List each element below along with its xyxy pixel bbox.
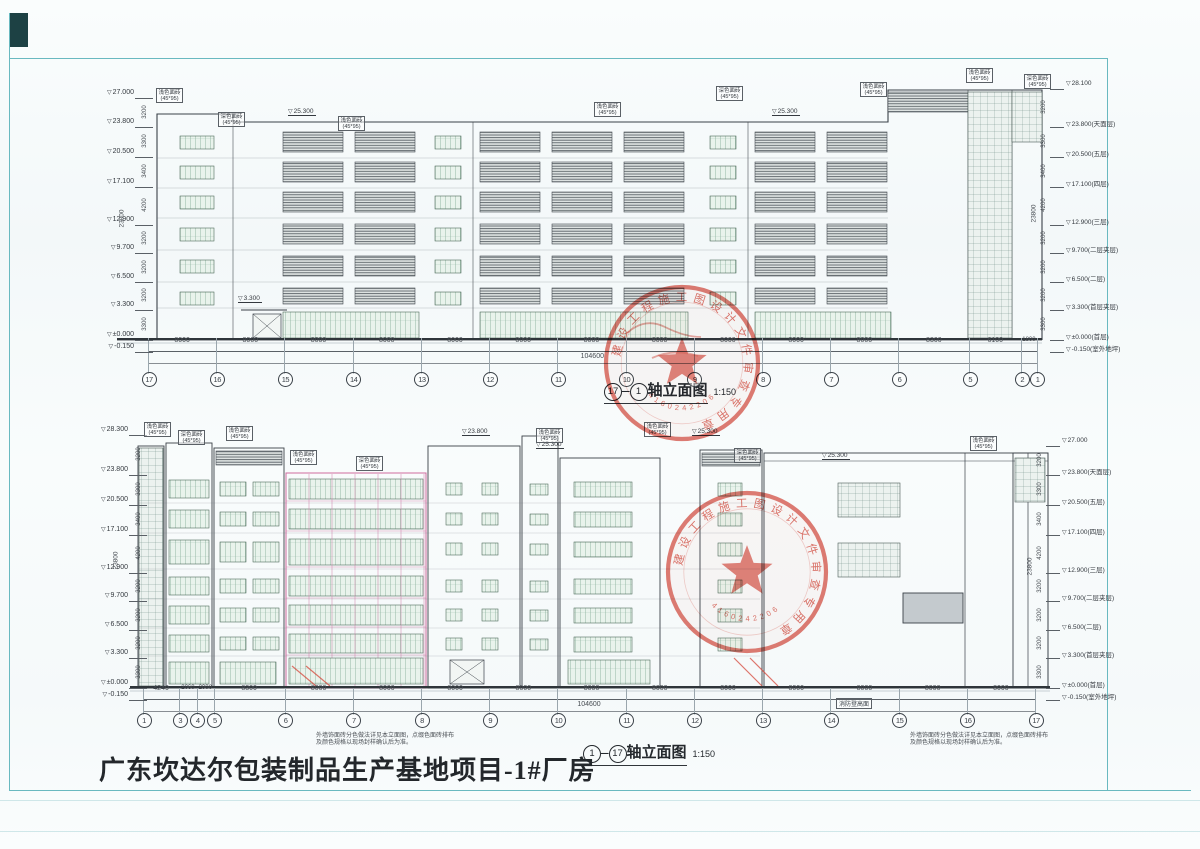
axis-tick [1035, 688, 1036, 715]
material-label: 深色面砖(45*95) [178, 430, 205, 445]
axis-bubble-17: 17 [1029, 713, 1044, 728]
axis-dimension: 8000 [762, 685, 830, 692]
axis-dimension: 8000 [967, 685, 1035, 692]
axis-dimension: 8000 [489, 685, 557, 692]
level-label: ▽9.700(二层夹层) [1066, 244, 1118, 254]
floor-height-dimension: 3300 [1037, 472, 1043, 506]
axis-bubble-1: 1 [1030, 372, 1045, 387]
axis-bubble-13: 13 [756, 713, 771, 728]
dimension-line [143, 711, 1035, 712]
note-line: 及颜色规格以现场封样确认后为准。 [910, 740, 1048, 747]
project-title: 广东坎达尔包装制品生产基地项目-1#厂房 [99, 750, 596, 787]
total-height-dimension: 23800 [1027, 550, 1034, 584]
floor-height-dimension: 3300 [142, 124, 148, 158]
axis-bubble-16: 16 [210, 372, 225, 387]
floor-height-dimension: 3300 [1037, 655, 1043, 689]
level-label: ▽27.000 [107, 89, 134, 96]
floor-height-dimension: 4200 [142, 188, 148, 222]
sheet-edge-line-2 [0, 831, 1200, 832]
scan-corner-artifact [10, 13, 28, 47]
axis-bubble-17: 17 [142, 372, 157, 387]
level-label: ▽3.300(首层夹层) [1066, 301, 1118, 311]
level-tick [1046, 505, 1060, 506]
axis-dimension: 8300 [898, 337, 969, 344]
axis-dimension: 8000 [285, 685, 353, 692]
material-label: 深色面砖(45*95) [716, 86, 743, 101]
level-label: ▽±0.000(首层) [1062, 679, 1105, 689]
floor-height-dimension: 3400 [142, 154, 148, 188]
level-label: ▽6.500 [111, 273, 134, 280]
level-label: ▽23.800(天面层) [1062, 466, 1111, 476]
axis-dimension: 8000 [148, 337, 216, 344]
level-label: ▽6.500(二层) [1062, 621, 1101, 631]
axis-bubble-12: 12 [483, 372, 498, 387]
level-tick [1046, 688, 1060, 689]
floor-height-dimension: 3400 [1037, 502, 1043, 536]
axis-dimension: 8300 [214, 685, 285, 692]
axis-dimension: 6100 [969, 337, 1021, 344]
axis-dimension: 2060 [179, 685, 197, 691]
level-tick [1046, 535, 1060, 536]
axis-bubble-14: 14 [346, 372, 361, 387]
total-height-dimension: 23800 [119, 202, 126, 236]
material-label: 深色面砖(45*95) [356, 456, 383, 471]
material-label: 深色面砖(45*95) [1024, 74, 1051, 89]
level-label: ▽17.100(四层) [1066, 178, 1109, 188]
title-text: 轴立面图 [627, 745, 687, 761]
axis-dimension: 8000 [762, 337, 830, 344]
axis-bubble-4: 4 [190, 713, 205, 728]
material-label: 浅色面砖(45*95) [594, 102, 621, 117]
level-label: ▽17.100 [107, 178, 134, 185]
level-label: ▽6.500(二层) [1066, 273, 1105, 283]
axis-bubble-13: 13 [414, 372, 429, 387]
level-label: ▽23.800 [101, 466, 128, 473]
level-label: ▽-0.150 [103, 691, 128, 698]
axis-dimension: 8000 [830, 685, 898, 692]
axis-bubble-6: 6 [278, 713, 293, 728]
axis-dimension: 8000 [626, 685, 694, 692]
axis-dimension: 8000 [489, 337, 557, 344]
axis-dimension: 8000 [353, 685, 421, 692]
level-label: ▽6.500 [105, 621, 128, 628]
material-label: 浅色面砖(45*95) [144, 422, 171, 437]
total-height-dimension: 23800 [113, 544, 120, 578]
level-label: ▽9.700 [105, 592, 128, 599]
elevation-mark: ▽23.800 [462, 428, 490, 436]
elevation-mark: ▽25.300 [772, 108, 800, 116]
axis-bubble-7: 7 [824, 372, 839, 387]
material-label: 浅色面砖(45*95) [226, 426, 253, 441]
floor-height-dimension: 3400 [136, 502, 142, 536]
level-label: ▽23.800 [107, 118, 134, 125]
axis-bubble-12: 12 [687, 713, 702, 728]
floor-height-dimension: 4200 [136, 536, 142, 570]
level-tick [129, 700, 147, 701]
axis-dimension: 1800 [1021, 337, 1036, 343]
drawing-sheet: 17–1轴立面图1:150 1–17轴立面图1:150 广东坎达尔包装制品生产基… [0, 0, 1200, 849]
level-label: ▽3.300(首层夹层) [1062, 649, 1114, 659]
floor-height-dimension: 3300 [136, 472, 142, 506]
axis-dimension: 2000 [197, 685, 214, 691]
level-label: ▽±0.000(首层) [1066, 331, 1109, 341]
axis-bubble-1: 1 [137, 713, 152, 728]
axis-bubble-16: 16 [960, 713, 975, 728]
level-label: ▽-0.150 [109, 343, 134, 350]
frame-top-line [9, 58, 1107, 59]
dimension-line [148, 363, 1037, 364]
level-label: ▽28.100 [1066, 80, 1092, 87]
material-label: 浅色面砖(45*95) [536, 428, 563, 443]
floor-height-dimension: 3300 [136, 655, 142, 689]
level-tick [1050, 340, 1064, 341]
level-label: ▽±0.000 [107, 331, 134, 338]
note-line: 外墙饰面砖分色做法详见本立面图，点缀色面砖排布 [316, 733, 454, 740]
frame-left-line [9, 13, 10, 790]
level-label: ▽3.300 [111, 301, 134, 308]
floor-height-dimension: 3300 [1041, 307, 1047, 341]
total-dimension: 104600 [148, 353, 1037, 360]
level-tick [1046, 601, 1060, 602]
total-dimension: 104600 [143, 701, 1035, 708]
level-label: ▽28.300 [101, 426, 128, 433]
material-label: 浅色面砖(45*95) [860, 82, 887, 97]
material-label: 浅色面砖(45*95) [338, 116, 365, 131]
construction-note: 外墙饰面砖分色做法详见本立面图，点缀色面砖排布 及颜色规格以现场封样确认后为准。 [910, 733, 1048, 747]
axis-bubble-5: 5 [207, 713, 222, 728]
floor-height-dimension: 3400 [1041, 154, 1047, 188]
level-tick [135, 352, 153, 353]
axis-dimension: 4240 [143, 685, 179, 692]
material-label: 深色面砖(45*95) [734, 448, 761, 463]
scale-label: 1:150 [693, 749, 716, 759]
axis-dimension: 8000 [353, 337, 421, 344]
material-label: 浅色面砖(45*95) [156, 88, 183, 103]
axis-bubble-5: 5 [963, 372, 978, 387]
floor-height-dimension: 4200 [1037, 536, 1043, 570]
elevation-mark: ▽25.300 [822, 452, 850, 460]
level-label: ▽3.300 [105, 649, 128, 656]
level-label: ▽20.500 [107, 148, 134, 155]
level-tick [1050, 310, 1064, 311]
level-tick [1050, 157, 1064, 158]
level-label: ▽9.700 [111, 244, 134, 251]
total-height-dimension: 23800 [1031, 197, 1038, 231]
level-label: ▽20.500 [101, 496, 128, 503]
floor-height-dimension: 3200 [136, 437, 142, 471]
axis-dimension: 8000 [421, 337, 489, 344]
level-tick [1046, 630, 1060, 631]
level-label: ▽20.500(五层) [1066, 148, 1109, 158]
level-tick [1050, 225, 1064, 226]
level-label: ▽23.800(天面层) [1066, 118, 1115, 128]
level-tick [1046, 658, 1060, 659]
frame-bottom-line [9, 790, 1191, 791]
axis-bubble-14: 14 [824, 713, 839, 728]
level-tick [1050, 282, 1064, 283]
level-tick [1050, 352, 1064, 353]
level-tick [1050, 89, 1064, 90]
axis-bubble-15: 15 [278, 372, 293, 387]
level-tick [1046, 573, 1060, 574]
level-label: ▽20.500(五层) [1062, 496, 1105, 506]
level-label: ▽12.900(三层) [1066, 216, 1109, 226]
level-label: ▽9.700(二层夹层) [1062, 592, 1114, 602]
axis-dimension: 8000 [421, 685, 489, 692]
level-label: ▽12.900(三层) [1062, 564, 1105, 574]
note-line: 及颜色规格以现场封样确认后为准。 [316, 740, 454, 747]
level-label: ▽27.000 [1062, 437, 1088, 444]
level-tick [1046, 475, 1060, 476]
axis-bubble-10: 10 [551, 713, 566, 728]
level-label: ▽-0.150(室外地坪) [1066, 343, 1120, 353]
axis-tick [1037, 338, 1038, 374]
axis-bubble-2: 2 [1015, 372, 1030, 387]
axis-dimension: 8000 [284, 337, 352, 344]
material-label: 浅色面砖(45*95) [970, 436, 997, 451]
level-tick [1050, 187, 1064, 188]
note-line: 外墙饰面砖分色做法详见本立面图，点缀色面砖排布 [910, 733, 1048, 740]
level-tick [1046, 446, 1060, 447]
dimension-line [148, 351, 1037, 352]
level-tick [1050, 253, 1064, 254]
axis-dimension: 8000 [830, 337, 898, 344]
bottom-elevation-title: 1–17轴立面图1:150 [583, 741, 715, 766]
elevation-mark: ▽3.300 [238, 295, 262, 303]
axis-bubble-3: 3 [173, 713, 188, 728]
axis-bubble-9: 9 [483, 713, 498, 728]
axis-bubble-6: 6 [892, 372, 907, 387]
level-label: ▽±0.000 [101, 679, 128, 686]
sheet-edge-line-1 [0, 800, 1200, 801]
axis-bubble-7: 7 [346, 713, 361, 728]
axis-dimension: 8000 [216, 337, 284, 344]
construction-note: 外墙饰面砖分色做法详见本立面图，点缀色面砖排布 及颜色规格以现场封样确认后为准。 [316, 733, 454, 747]
level-label: ▽17.100 [101, 526, 128, 533]
material-label: 浅色面砖(45*95) [966, 68, 993, 83]
dimension-line [143, 699, 1035, 700]
axis-dimension: 8000 [899, 685, 967, 692]
elevation-mark: ▽25.300 [288, 108, 316, 116]
frame-right-line [1107, 58, 1108, 790]
material-label: 深色面砖(45*95) [218, 112, 245, 127]
material-label: 浅色面砖(45*95) [290, 450, 317, 465]
floor-height-dimension: 3300 [1041, 124, 1047, 158]
axis-dimension: 8000 [557, 685, 625, 692]
level-tick [1046, 700, 1060, 701]
floor-height-dimension: 3200 [1041, 90, 1047, 124]
axis-bubble-11: 11 [619, 713, 634, 728]
floor-height-dimension: 3300 [142, 307, 148, 341]
level-label: ▽-0.150(室外地坪) [1062, 691, 1116, 701]
level-tick [1050, 127, 1064, 128]
axis-bubble-8: 8 [415, 713, 430, 728]
axis-dimension: 8000 [694, 685, 762, 692]
floor-height-dimension: 4200 [1041, 188, 1047, 222]
axis-bubble: 17 [609, 745, 627, 763]
level-label: ▽17.100(四层) [1062, 526, 1105, 536]
axis-bubble-11: 11 [551, 372, 566, 387]
axis-bubble-15: 15 [892, 713, 907, 728]
